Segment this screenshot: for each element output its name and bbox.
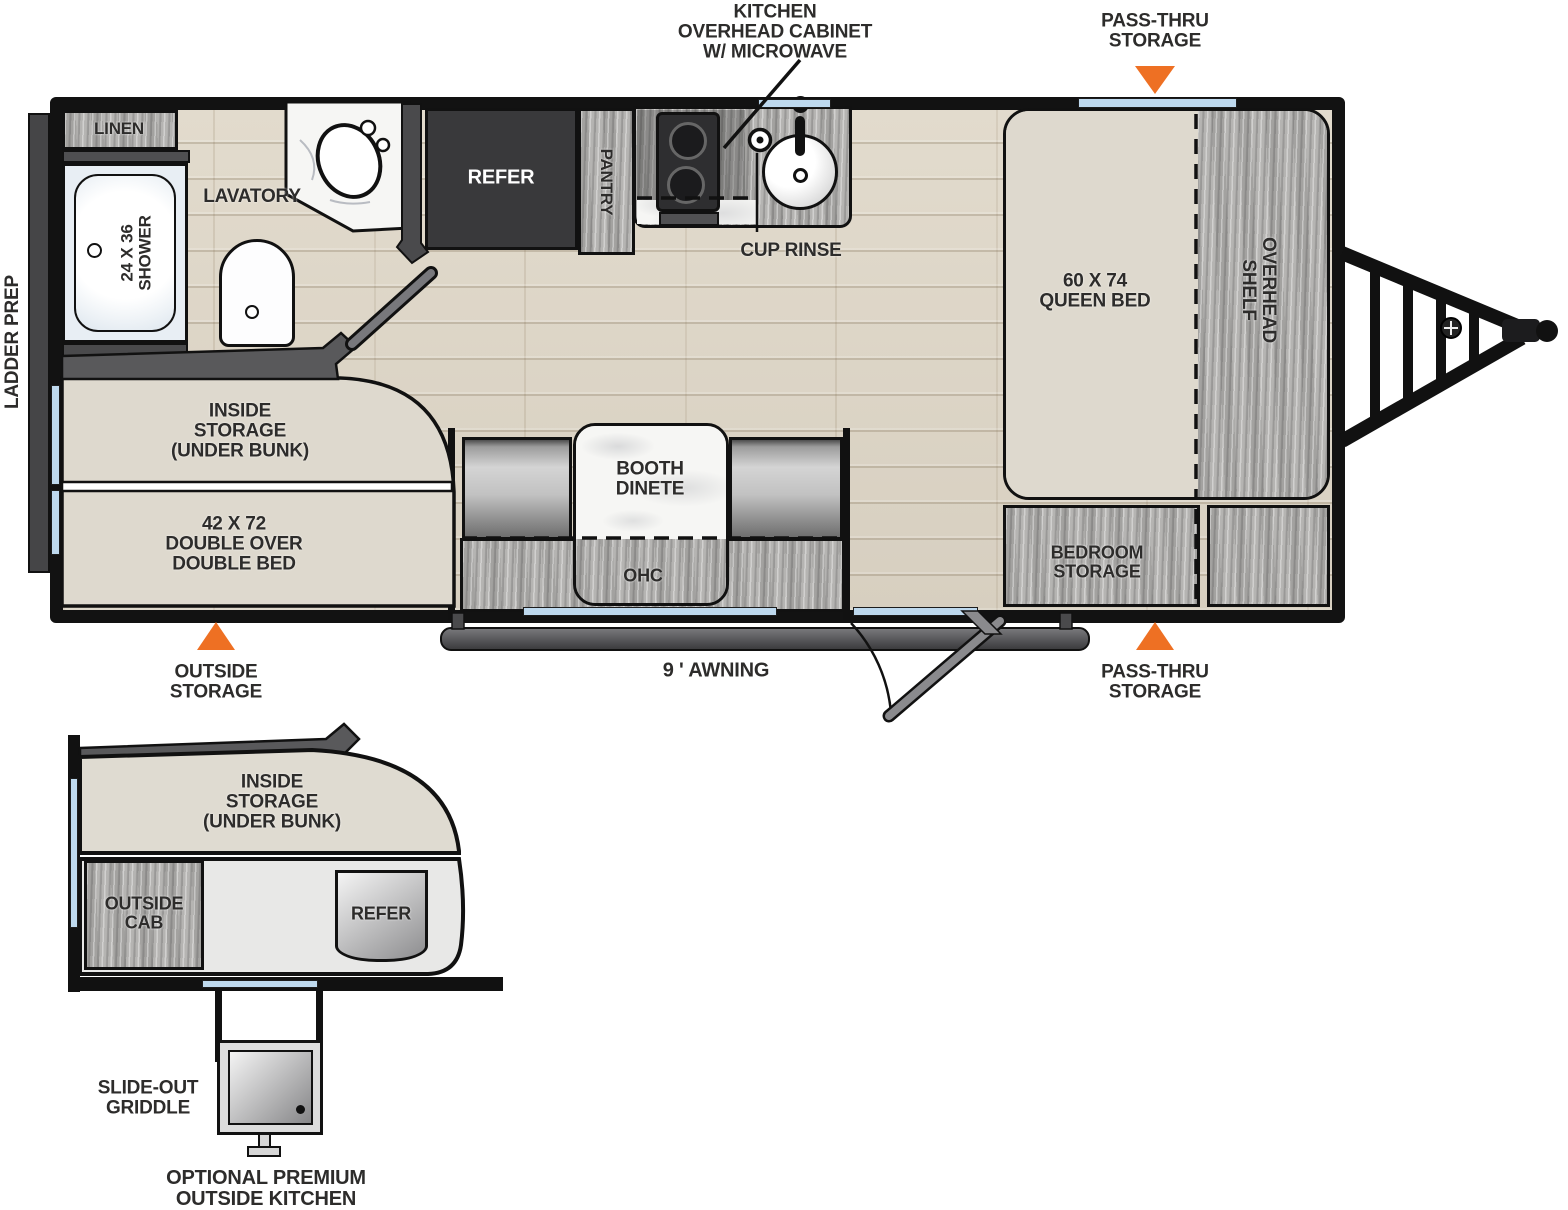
entry-door-leaf [889, 621, 1000, 716]
lav-faucet-hole-2 [377, 139, 389, 151]
pantry-label: PANTRY [597, 149, 615, 216]
overhead-shelf-label: OVERHEAD SHELF [1238, 237, 1278, 343]
booth-dinete-label: BOOTH DINETE [616, 459, 684, 499]
inset-refer-label: REFER [351, 905, 411, 924]
slide-out-griddle-label: SLIDE-OUT GRIDDLE [98, 1078, 199, 1118]
bathroom-wall-bar [62, 333, 356, 379]
ladder-prep-label: LADDER PREP [3, 275, 23, 409]
double-bed-label: 42 X 72 DOUBLE OVER DOUBLE BED [165, 514, 302, 573]
tongue-rail-top [1342, 253, 1522, 328]
bunk-divider [62, 482, 452, 491]
tongue-rail-bottom [1342, 338, 1522, 441]
awning-label: 9 ' AWNING [663, 661, 769, 682]
outside-storage-label: OUTSIDE STORAGE [170, 662, 262, 702]
optional-outside-kitchen-label: OPTIONAL PREMIUM OUTSIDE KITCHEN [166, 1168, 366, 1210]
ohc-label: OHC [623, 567, 662, 586]
inside-storage-label: INSIDE STORAGE (UNDER BUNK) [171, 401, 309, 460]
bath-door-leaf [352, 273, 431, 344]
floorplan-diagram: KITCHEN OVERHEAD CABINET W/ MICROWAVE PA… [0, 0, 1568, 1210]
cup-rinse-label: CUP RINSE [740, 241, 841, 261]
awning-bracket-left [452, 613, 464, 629]
cup-rinse-dot [757, 137, 764, 144]
inset-inside-storage-label: INSIDE STORAGE (UNDER BUNK) [203, 772, 341, 831]
hitch-ball [1536, 320, 1558, 342]
diagram-linework [0, 0, 1568, 1210]
bath-wall-segment [397, 104, 428, 263]
shower-label: 24 X 36 SHOWER [118, 215, 153, 290]
pass-thru-bottom-label: PASS-THRU STORAGE [1101, 662, 1209, 702]
hitch-coupler [1502, 319, 1540, 342]
inset-outside-cab-label: OUTSIDE CAB [105, 894, 184, 931]
lav-faucet-hole-1 [361, 121, 375, 135]
lavatory-label: LAVATORY [203, 187, 301, 207]
pass-thru-top-label: PASS-THRU STORAGE [1101, 11, 1209, 51]
bedroom-storage-label: BEDROOM STORAGE [1051, 543, 1144, 580]
awning-bracket-right [1060, 613, 1072, 629]
linen-label: LINEN [94, 120, 144, 138]
queen-bed-label: 60 X 74 QUEEN BED [1039, 271, 1150, 311]
kitchen-overhead-cabinet-label: KITCHEN OVERHEAD CABINET W/ MICROWAVE [678, 2, 872, 61]
entry-door-arc [851, 623, 891, 713]
refer-label: REFER [468, 168, 535, 189]
